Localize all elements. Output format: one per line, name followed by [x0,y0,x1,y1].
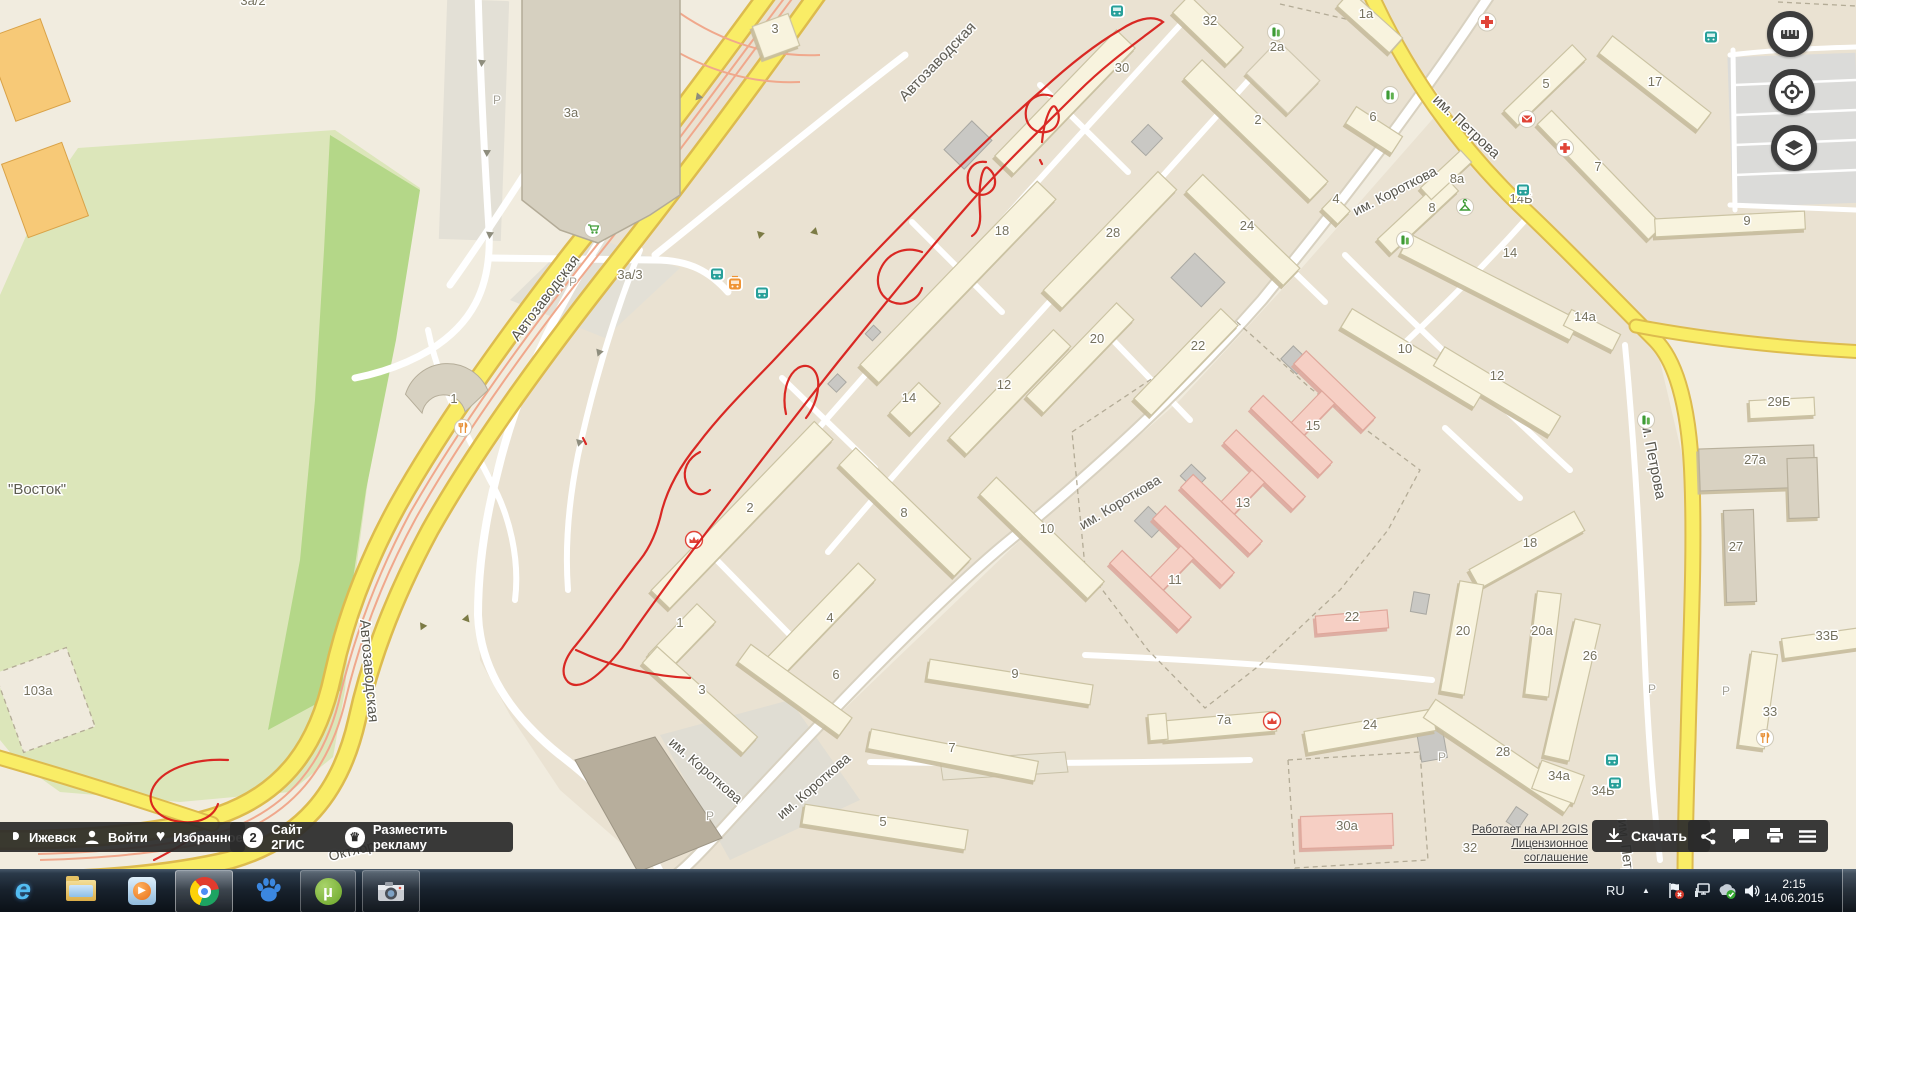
taskbar-camera-button[interactable] [362,870,420,913]
layers-icon [1782,136,1806,160]
clock-time: 2:15 [1782,877,1805,891]
bus-icon [1515,183,1531,197]
bus-icon [1109,4,1125,18]
building-number-label: 20 [1090,331,1104,346]
building-number-label: 33Б [1816,628,1839,643]
building-number-label: 12 [997,377,1011,392]
taskbar-explorer-button[interactable] [62,869,100,912]
building-number-label: 1 [676,615,683,630]
building-number-label: 8 [1428,200,1435,215]
building-number-label: 4 [826,610,833,625]
hospital-icon [1478,13,1496,31]
building-number-label: 27а [1744,452,1766,467]
network-icon[interactable] [1693,869,1711,912]
download-label: Скачать [1631,828,1687,844]
bus-icon [1703,30,1719,44]
building-number-label: 30а [1336,818,1358,833]
building-number-label: 7а [1217,712,1232,727]
bus-icon [1604,753,1620,767]
city-bar: Ижевск Войти ♥ Избранное [0,822,245,852]
building-number-label: 3а/2 [240,0,265,8]
map-render: АвтозаводскаяАвтозаводскаяАвтозаводскаяи… [0,0,1856,869]
action-center-flag-icon[interactable] [1667,869,1685,912]
user-icon [84,829,100,845]
cart-icon [585,221,602,238]
building-number-label: 2 [746,500,753,515]
city-button[interactable]: Ижевск [29,830,76,845]
menu-icon[interactable] [1799,830,1816,843]
map-canvas[interactable]: АвтозаводскаяАвтозаводскаяАвтозаводскаяи… [0,0,1856,869]
post-icon [1519,111,1536,128]
folder-icon [66,880,96,901]
license-link[interactable]: Лицензионное соглашение [1511,838,1588,864]
building-number-label: 8а [1450,171,1465,186]
building-number-label: 27 [1729,539,1743,554]
building-number-label: 33 [1763,704,1777,719]
building-number-label: 18 [995,223,1009,238]
building-number-label: 10 [1040,521,1054,536]
building-number-label: 9 [1011,666,1018,681]
taskbar-wmp-button[interactable]: ▶ [124,869,160,912]
parking-label: P [706,809,714,823]
building-number-label: 6 [832,667,839,682]
building-number-label: 20а [1531,623,1553,638]
bus-icon [1607,776,1623,790]
building-number-label: 10 [1398,341,1412,356]
pharmacy-icon [1557,140,1574,157]
building-number-label: 12 [1490,368,1504,383]
building-number-label: 22 [1191,338,1205,353]
chrome-icon [190,877,219,906]
building-number-label: 22 [1345,609,1359,624]
building-number-label: 9 [1743,213,1750,228]
building-number-label: 24 [1363,717,1377,732]
building-number-label: 24 [1240,218,1254,233]
building-number-label: 30 [1115,60,1129,75]
building-number-label: 8 [900,505,907,520]
shop-icon [1638,412,1655,429]
tray-clock[interactable]: 2:15 14.06.2015 [1758,869,1830,912]
tray-language[interactable]: RU [1606,869,1625,912]
heart-icon: ♥ [156,828,166,846]
taskbar-chrome-button[interactable] [175,870,233,913]
building-number-label: 13 [1236,495,1250,510]
clock-date: 14.06.2015 [1764,891,1824,905]
building-number-label: 15 [1306,418,1320,433]
2gis-logo-icon: 2 [243,827,263,848]
building-number-label: 3а [564,105,579,120]
measure-button[interactable] [1767,11,1813,57]
crown-icon: ♛ [345,827,365,848]
parking-label: P [1722,684,1730,698]
comment-icon[interactable] [1732,828,1750,844]
building-number-label: 20 [1456,623,1470,638]
building-number-label: 3 [698,682,705,697]
print-icon[interactable] [1766,828,1784,844]
building-number-label: 28 [1106,225,1120,240]
shop-icon [1268,24,1285,41]
camera-icon [377,881,405,903]
utorrent-icon: µ [315,878,342,905]
building-number-label: 5 [1542,76,1549,91]
building-number-label: 32 [1203,13,1217,28]
building-number-label: 2 [1254,112,1261,127]
taskbar-ie-button[interactable]: e [4,869,42,912]
food-icon [1757,730,1774,747]
site-bar: 2 Сайт 2ГИС ♛ Разместить рекламу [230,822,513,852]
taskbar: e ▶ µ RU ▲ 2:15 14.06 [0,869,1856,912]
pin-icon [13,831,21,843]
building-number-label: 14а [1574,309,1596,324]
share-icon[interactable] [1700,828,1717,845]
parking-label: P [1438,750,1446,764]
locate-icon [1780,80,1804,104]
bus-icon [754,286,770,300]
api-link[interactable]: Работает на API 2GIS [1472,824,1588,836]
building-number-label: 7 [1594,159,1601,174]
tram-icon [727,277,743,292]
building-number-label: 1 [450,391,457,406]
login-button[interactable]: Войти [108,830,148,845]
baidu-paw-icon [255,877,282,904]
shop-icon [1382,87,1399,104]
building-number-label: 17 [1648,74,1662,89]
attribution: Работает на API 2GIS Лицензионное соглаш… [1452,823,1588,865]
attraction-icon [1264,713,1281,730]
internet-explorer-icon: e [15,874,31,907]
parking-label: P [1648,682,1656,696]
building-number-label: 5 [879,814,886,829]
cloud-sync-icon[interactable] [1717,869,1737,912]
parking-label: P [569,275,577,289]
building-number-label: 29Б [1768,394,1791,409]
building-number-label: 3 [771,21,778,36]
building-number-label: 103а [24,683,54,698]
locate-button[interactable] [1769,69,1815,115]
site-link-button[interactable]: Сайт 2ГИС [271,822,336,852]
park-label: "Восток" [8,481,66,498]
building-number-label: 26 [1583,648,1597,663]
taskbar-utorrent-button[interactable]: µ [300,870,356,913]
shop-icon [1397,232,1414,249]
building-number-label: 3а/3 [617,267,642,282]
tray-show-hidden[interactable]: ▲ [1642,869,1650,912]
advertise-button[interactable]: Разместить рекламу [373,822,500,852]
show-desktop-button[interactable] [1842,869,1856,912]
food-icon [455,420,472,437]
parking-label: P [493,93,501,107]
building-number-label: 2а [1270,39,1285,54]
building-number-label: 1а [1359,6,1374,21]
bus-icon [709,267,725,281]
map-tools-bar [1688,820,1828,852]
building-number-label: 14 [1503,245,1517,260]
building-number-label: 7 [948,740,955,755]
building-number-label: 18 [1523,535,1537,550]
ruler-icon [1779,23,1801,45]
download-icon [1605,828,1623,845]
building-number-label: 6 [1369,109,1376,124]
building-number-label: 14 [902,390,916,405]
building-number-label: 28 [1496,744,1510,759]
building-number-label: 34а [1548,768,1570,783]
building-number-label: 4 [1332,191,1339,206]
clothes-icon [1457,199,1474,216]
building-number-label: 11 [1168,572,1182,587]
layers-button[interactable] [1771,125,1817,171]
taskbar-baidu-button[interactable] [248,869,288,912]
media-player-icon: ▶ [128,877,156,905]
